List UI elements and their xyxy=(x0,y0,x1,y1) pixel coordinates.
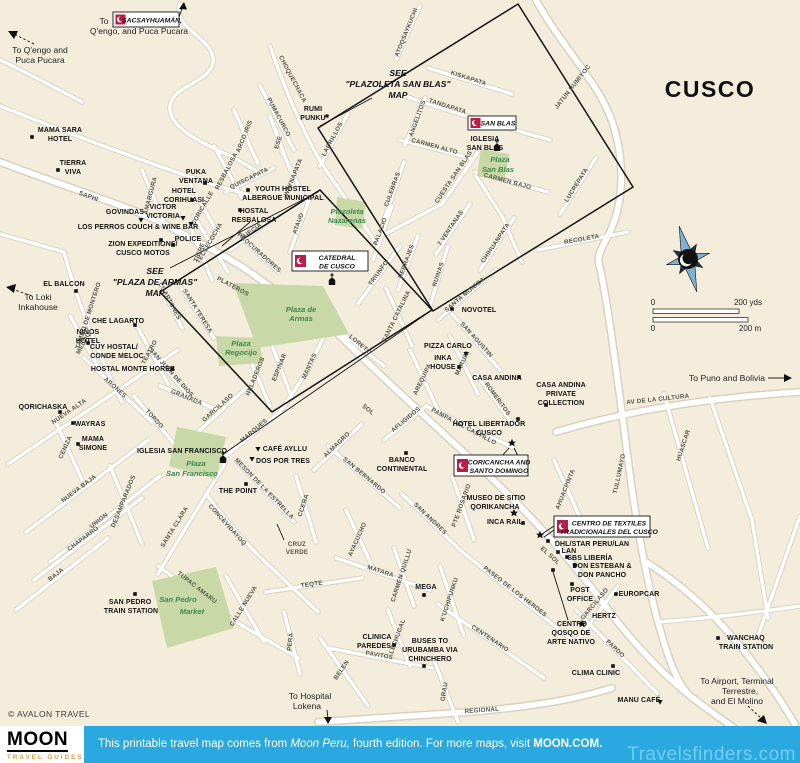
poi-label: INKA xyxy=(434,355,452,362)
see-note: MAP xyxy=(145,288,164,298)
plaza-label: Plaza de xyxy=(286,305,317,314)
poi-label: QOSQO DE xyxy=(552,630,591,637)
poi-label: MEGA xyxy=(415,584,436,591)
street-label: AFLIGIDOS xyxy=(390,406,422,434)
poi-label: POST xyxy=(570,587,590,594)
poi-label: TRAIN STATION xyxy=(719,644,773,651)
plaza-label: Plaza xyxy=(186,459,205,468)
scale-label: 0 xyxy=(651,298,656,307)
poi-label: CHINCHERO xyxy=(408,656,452,663)
poi-label: MAMA SARA xyxy=(38,127,82,134)
moon-logo: MOON TRAVEL GUIDES xyxy=(0,726,84,763)
poi-label: CHE LAGARTO xyxy=(92,318,145,325)
poi-label: ALBERGUE MUNICIPAL xyxy=(242,195,324,202)
badge-label: CATEDRAL xyxy=(319,255,356,262)
badge-label: SANTO DOMINGO xyxy=(470,468,529,475)
poi-label: RUMI xyxy=(304,106,322,113)
street-label: MARQUES xyxy=(239,417,269,444)
plaza-label: Regocijo xyxy=(225,348,257,357)
poi-label: VICTOR xyxy=(150,204,177,211)
street-label: ATAUD xyxy=(292,212,306,235)
plaza-label: Armas xyxy=(288,314,313,323)
street-label: CHIHUANPATA xyxy=(480,222,512,265)
cusco-travel-map-page: SAPHI AMARGURA RESBALOSA CORICALLE TECSE… xyxy=(0,0,800,763)
see-note: SEE xyxy=(389,68,406,78)
poi-label: HOTEL xyxy=(172,188,197,195)
street-label: SOL xyxy=(360,403,375,417)
poi-label: DHL/STAR PERU/LAN xyxy=(555,541,629,548)
direction-label: Puca Pucara xyxy=(15,55,64,65)
poi-label: LOS PERROS COUCH & WINE BAR xyxy=(78,224,199,231)
plaza-label: Plazoleta xyxy=(331,207,364,216)
poi-label: CLINICA xyxy=(362,634,391,641)
direction-label: To Hospital xyxy=(289,691,332,701)
major-roads xyxy=(0,0,800,726)
plaza-label: Nazarenas xyxy=(328,216,366,225)
poi-label: DON PANCHO xyxy=(578,572,627,579)
street-label: ANGELITOS xyxy=(408,99,428,137)
street-label: TEQTE xyxy=(300,580,323,590)
scale-label: 200 yds xyxy=(734,298,762,307)
map-title: CUSCO xyxy=(665,76,756,102)
street-label: CARMEN BAJO xyxy=(483,172,532,191)
plaza-label: San Francisco xyxy=(166,469,218,478)
poi-label: CONDE MELOC xyxy=(90,353,144,360)
poi-label: SIMONE xyxy=(79,445,107,452)
badge-label: TRADICIONALES DEL CUSCO xyxy=(560,529,658,536)
map-canvas: SAPHI AMARGURA RESBALOSA CORICALLE TECSE… xyxy=(0,0,800,726)
see-note: "PLAZOLETA SAN BLAS" xyxy=(345,79,451,89)
san-blas-badge: SAN BLAS xyxy=(468,116,516,130)
poi-label: ARTE NATIVO xyxy=(547,639,595,646)
poi-label: HERTZ xyxy=(592,613,616,620)
poi-label: GOVINDAS xyxy=(106,209,144,216)
major-roads-casing xyxy=(0,0,800,726)
street-label: LUCREPATA xyxy=(563,167,590,204)
poi-label: SAN PEDRO xyxy=(109,599,152,606)
street-label: ATOQSAYKUCHI xyxy=(394,7,420,58)
poi-label: BANCO xyxy=(389,457,416,464)
street-label: CONCEVIDAYOQ xyxy=(207,503,248,547)
direction-label: Inkahouse xyxy=(18,302,58,312)
poi-label: CASA ANDINA xyxy=(472,375,522,382)
poi-label: OFFICE xyxy=(567,596,593,603)
poi-label: CASA ANDINA xyxy=(536,382,586,389)
street-label: MANTAS xyxy=(301,352,319,380)
poi-label: THE POINT xyxy=(219,488,258,495)
direction-label: To Loki xyxy=(24,292,51,302)
street-label: SANTA TERESA xyxy=(181,288,214,335)
poi-label: IGLESIA SAN FRANCISCO xyxy=(137,448,228,455)
poi-label: YOUTH HOSTEL xyxy=(255,186,312,193)
street-label: CUESTA SAN BLAS xyxy=(434,150,474,205)
poi-label: MAMA xyxy=(82,436,104,443)
arrow-right-icon xyxy=(784,374,792,382)
plaza-label: San Pedro xyxy=(159,595,197,604)
direction-label: Terrestre, xyxy=(722,686,758,696)
poi-label: TRAIN STATION xyxy=(104,608,158,615)
direction-label: Lokena xyxy=(293,701,321,711)
direction-label: To Airport, Terminal xyxy=(700,676,773,686)
coricancha-badge: CORICANCHA AND SANTO DOMINGO xyxy=(454,455,530,476)
see-map-notes: SEE "PLAZOLETA SAN BLAS" MAP SEE "PLAZA … xyxy=(113,68,452,298)
poi-label: RESBALOSA xyxy=(232,217,277,224)
poi-label: EUROPCAR xyxy=(619,591,660,598)
watermark: Travelsfinders.com xyxy=(627,744,796,763)
arrow-left-icon xyxy=(6,284,16,293)
street-label: RECOLETA xyxy=(564,233,601,246)
street-label: PASEO DE LOS HEROES xyxy=(482,565,548,619)
street-label: CRUZ xyxy=(288,541,306,548)
poi-label: SBS LIBERÍA xyxy=(567,553,612,562)
moon-brand-subtext: TRAVEL GUIDES xyxy=(7,754,84,761)
moon-brand-text: MOON xyxy=(7,730,68,752)
poi-label: HOTEL xyxy=(48,136,73,143)
church-icon xyxy=(329,273,335,285)
poi-label: INCA RAIL xyxy=(487,519,524,526)
banner-text-mid: fourth edition. For more maps, visit xyxy=(350,738,533,750)
poi-label: VICTORIA xyxy=(146,213,180,220)
street-label: 7 VENTANAS xyxy=(436,209,465,247)
scale-label: 200 m xyxy=(739,324,762,333)
street-label: SAN BERNARDO xyxy=(341,456,387,496)
see-note: SEE xyxy=(146,266,163,276)
poi-label: PRIVATE xyxy=(546,391,576,398)
poi-label: CONTINENTAL xyxy=(377,466,428,473)
badge-label: DE CUSCO xyxy=(319,264,356,271)
poi-label: MUSEO DE SITIO xyxy=(467,495,526,502)
poi-label: QORIKANCHA xyxy=(470,504,519,511)
street-label: TULLUMAYO xyxy=(612,453,627,494)
poi-label: DON ESTEBAN & xyxy=(572,563,631,570)
plaza-label: Market xyxy=(180,607,205,616)
plaza-label: San Blas xyxy=(482,165,514,174)
poi-label: CUY HOSTAL/ xyxy=(90,344,138,351)
poi-label: SAN BLAS xyxy=(467,145,504,152)
poi-label: PAREDES xyxy=(357,643,391,650)
poi-label: BUSES TO xyxy=(412,638,449,645)
street-label: RUINAS xyxy=(431,261,445,287)
direction-arrows xyxy=(6,2,792,724)
poi-label: NIÑOS xyxy=(77,327,100,336)
poi-label: HOSTAL xyxy=(240,208,269,215)
poi-label: HOSTAL MONTE HOREB xyxy=(91,366,175,373)
poi-label: PUNKU xyxy=(300,115,325,122)
direction-label: Q'engo, and Puca Pucara xyxy=(90,26,188,36)
street-label: SAN ANDRES xyxy=(412,501,448,536)
direction-label: To Q'engo and xyxy=(12,45,68,55)
poi-label: HOUSE xyxy=(430,364,456,371)
badge-label: CORICANCHA AND xyxy=(468,460,531,467)
street-label: VERDE xyxy=(286,549,309,556)
street-label: SAPHI xyxy=(78,190,99,203)
street-label: TRIUNFO xyxy=(367,259,390,287)
badge-label: SACSAYHUAMÁN, xyxy=(122,16,182,25)
plaza-label: Plaza xyxy=(231,339,250,348)
poi-label: EL BALCON xyxy=(43,281,85,288)
direction-label: To xyxy=(99,16,108,26)
street-label: PARDO xyxy=(604,638,626,659)
banner-text-pre: This printable travel map comes from xyxy=(98,738,290,750)
street-label: ROMERITOS xyxy=(483,381,512,417)
poi-label: URUBAMBA VIA xyxy=(402,647,458,654)
poi-label: POLICE xyxy=(175,236,202,243)
poi-label: COLLECTION xyxy=(538,400,585,407)
poi-label: CENTRO xyxy=(557,621,588,628)
badge-label: SAN BLAS xyxy=(481,121,516,128)
cusco-map-svg: SAPHI AMARGURA RESBALOSA CORICALLE TECSE… xyxy=(0,0,800,726)
poi-label: NOVOTEL xyxy=(462,307,497,314)
copyright-label: © AVALON TRAVEL xyxy=(8,709,90,719)
direction-labels: To Q'engo, and Puca Pucara To Q'engo and… xyxy=(12,16,774,711)
scale-label: 0 xyxy=(651,324,656,333)
street-label: MATARA xyxy=(366,564,394,579)
textiles-badge: CENTRO DE TEXTILES TRADICIONALES DEL CUS… xyxy=(554,516,659,537)
poi-label: CAFÉ AYLLU xyxy=(263,444,307,453)
poi-label: CUSCO MOTOS xyxy=(116,250,170,257)
poi-label: VENTANA xyxy=(179,178,213,185)
direction-label: To Puno and Bolivia xyxy=(689,373,765,383)
poi-label: PUKA xyxy=(186,169,206,176)
banner-site-link[interactable]: MOON.COM. xyxy=(533,738,602,750)
badge-label: CENTRO DE TEXTILES xyxy=(572,521,647,528)
poi-label: MANU CAFÉ xyxy=(618,695,661,704)
banner-book-title: Moon Peru, xyxy=(290,738,349,750)
poi-label: LAN xyxy=(562,548,577,555)
road-network xyxy=(0,0,800,726)
poi-label: HOTEL LIBERTADOR xyxy=(453,421,526,428)
see-note: MAP xyxy=(388,90,407,100)
compass-rose-icon xyxy=(656,220,720,298)
poi-label: DOS POR TRES xyxy=(256,458,310,465)
direction-label: and El Molino xyxy=(711,696,763,706)
poi-label: CORIHUASI xyxy=(164,197,204,204)
poi-label: WANCHAQ xyxy=(727,635,765,642)
scale-bar: 0 200 yds 0 200 m xyxy=(651,298,762,333)
poi-label: QORICHASKA xyxy=(19,404,68,411)
poi-label: CUSCO xyxy=(476,430,502,437)
poi-label: IGLESIA xyxy=(471,136,500,143)
plaza-label: Plaza xyxy=(490,155,509,164)
catedral-badge: CATEDRAL DE CUSCO xyxy=(292,251,368,271)
see-note: "PLAZA DE ARMAS" xyxy=(113,277,198,287)
poi-label: CLIMA CLINIC xyxy=(572,670,620,677)
poi-label: TIERRA xyxy=(60,160,87,167)
poi-label: PIZZA CARLO xyxy=(424,343,472,350)
poi-label: ZION EXPEDITIONS/ xyxy=(108,241,177,248)
sacsayhuaman-badge: SACSAYHUAMÁN, xyxy=(113,12,182,27)
poi-label: VIVA xyxy=(65,169,81,176)
street-label: CENTENARIO xyxy=(470,624,510,654)
poi-label: WAYRAS xyxy=(75,421,106,428)
